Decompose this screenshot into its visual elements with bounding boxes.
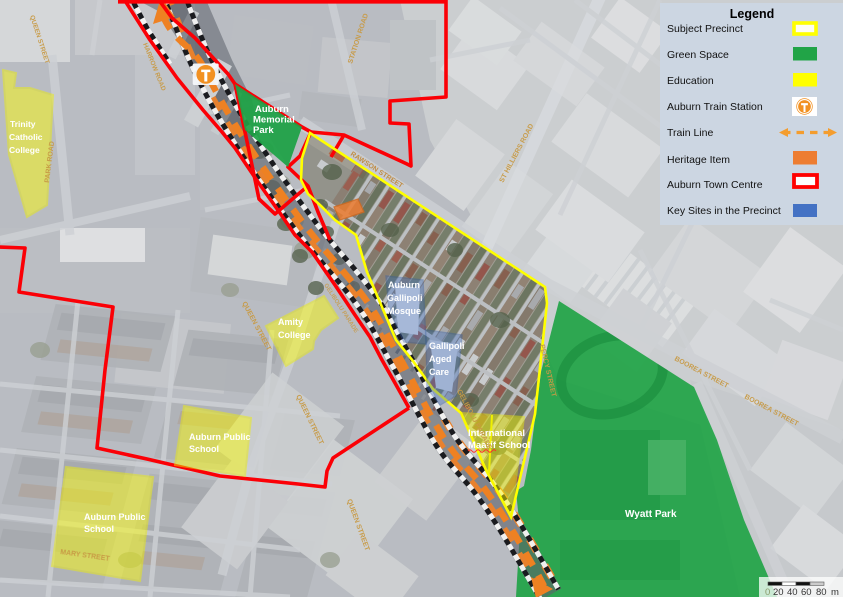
svg-text:80: 80 bbox=[816, 587, 827, 597]
svg-text:School: School bbox=[189, 444, 219, 454]
svg-text:Amity: Amity bbox=[278, 317, 303, 327]
svg-text:Mosque: Mosque bbox=[387, 306, 421, 316]
svg-text:Care: Care bbox=[429, 367, 449, 377]
svg-text:Education: Education bbox=[667, 75, 714, 87]
svg-text:Memorial: Memorial bbox=[253, 115, 295, 126]
svg-text:Heritage Item: Heritage Item bbox=[667, 154, 730, 166]
svg-text:Auburn Public: Auburn Public bbox=[84, 512, 146, 522]
svg-text:20: 20 bbox=[773, 587, 784, 597]
svg-text:40: 40 bbox=[787, 587, 798, 597]
svg-text:Gallipoli: Gallipoli bbox=[387, 293, 423, 303]
svg-text:Maarif School: Maarif School bbox=[468, 440, 530, 451]
svg-text:College: College bbox=[9, 145, 40, 155]
svg-text:School: School bbox=[84, 524, 114, 534]
svg-text:Key Sites in the Precinct: Key Sites in the Precinct bbox=[667, 205, 781, 217]
svg-text:0: 0 bbox=[765, 587, 770, 597]
svg-text:60: 60 bbox=[801, 587, 812, 597]
svg-text:m: m bbox=[831, 587, 839, 597]
svg-text:Auburn Public: Auburn Public bbox=[189, 432, 251, 442]
svg-text:College: College bbox=[278, 330, 311, 340]
svg-text:Catholic: Catholic bbox=[9, 132, 43, 142]
svg-text:Gallipoli: Gallipoli bbox=[429, 341, 465, 351]
svg-text:Park: Park bbox=[253, 125, 274, 136]
svg-text:Subject Precinct: Subject Precinct bbox=[667, 23, 743, 35]
svg-text:Aged: Aged bbox=[429, 354, 452, 364]
svg-text:Wyatt Park: Wyatt Park bbox=[625, 509, 677, 520]
svg-text:Auburn: Auburn bbox=[388, 280, 420, 290]
svg-text:Green Space: Green Space bbox=[667, 49, 729, 61]
svg-text:Auburn Train Station: Auburn Train Station bbox=[667, 101, 763, 113]
svg-text:Auburn Town Centre: Auburn Town Centre bbox=[667, 179, 763, 191]
svg-text:Auburn: Auburn bbox=[255, 104, 289, 115]
svg-text:Train Line: Train Line bbox=[667, 127, 713, 139]
svg-text:Legend: Legend bbox=[730, 7, 774, 21]
svg-text:Trinity: Trinity bbox=[10, 119, 36, 129]
